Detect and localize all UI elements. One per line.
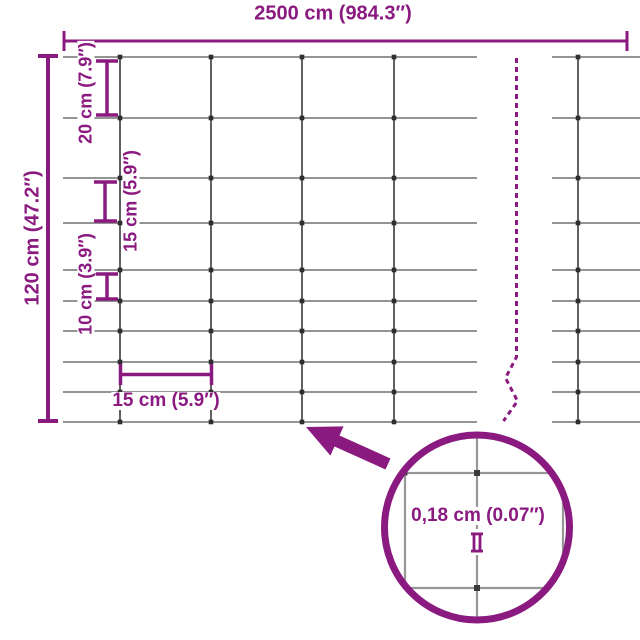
row-spacing-10-marker [96,274,118,299]
magnifier-pointer-arrow-icon [306,426,391,469]
total-height-label: 120 cm (47.2″) [24,170,43,305]
mesh-horizontal-wires [63,57,640,422]
total-width-label: 2500 cm (984.3″) [254,5,411,24]
mesh-vertical-wires [120,57,578,422]
row-spacing-15-label: 15 cm (5.9″) [122,149,139,253]
wire-thickness-label: 0,18 cm (0.07″) [410,507,546,525]
length-break-dashed-line [504,58,518,421]
row-spacing-15-marker [94,182,117,221]
column-spacing-label: 15 cm (5.9″) [111,392,220,410]
mesh-junction-clips [118,55,581,425]
row-spacing-20-label: 20 cm (7.9″) [77,41,94,145]
wire-gauge-icon [468,529,486,555]
fence-dimension-diagram: 2500 cm (984.3″) 120 cm (47.2″) 20 cm (7… [0,0,640,640]
column-spacing-15-marker [121,364,212,385]
row-spacing-10-label: 10 cm (3.9″) [77,232,94,336]
width-dimension-line [64,31,627,51]
row-spacing-20-marker [96,61,118,115]
diagram-canvas [0,0,640,640]
